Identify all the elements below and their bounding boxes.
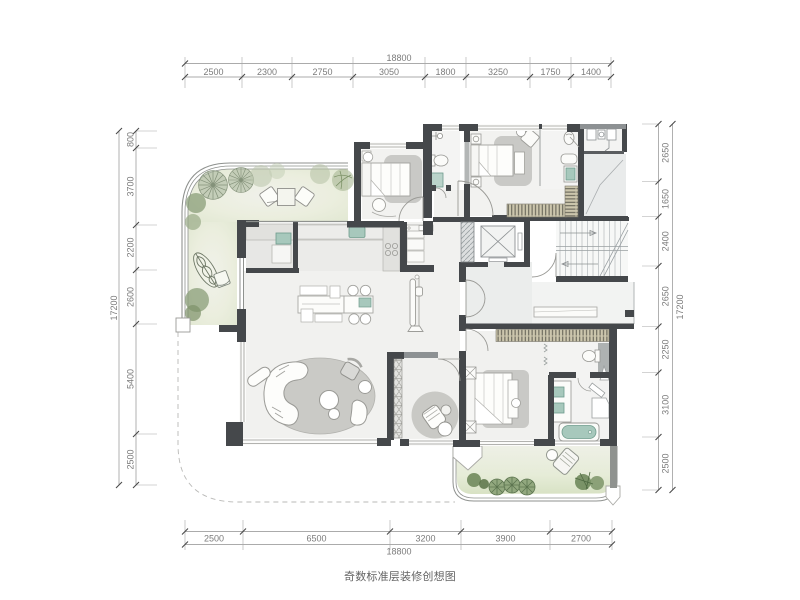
svg-text:2400: 2400 xyxy=(661,231,671,251)
svg-text:2200: 2200 xyxy=(126,237,136,257)
svg-text:奇数标准层装修创想图: 奇数标准层装修创想图 xyxy=(344,569,456,583)
svg-text:2250: 2250 xyxy=(661,339,671,359)
svg-text:3900: 3900 xyxy=(495,534,515,544)
svg-text:18800: 18800 xyxy=(386,53,411,63)
svg-text:1750: 1750 xyxy=(540,67,560,77)
svg-text:2500: 2500 xyxy=(203,67,223,77)
svg-text:5400: 5400 xyxy=(126,369,136,389)
svg-text:2600: 2600 xyxy=(126,287,136,307)
svg-text:1400: 1400 xyxy=(581,67,601,77)
svg-text:1650: 1650 xyxy=(661,189,671,209)
svg-text:2500: 2500 xyxy=(204,534,224,544)
svg-text:3200: 3200 xyxy=(415,534,435,544)
svg-text:1800: 1800 xyxy=(435,67,455,77)
svg-text:3100: 3100 xyxy=(661,395,671,415)
svg-text:2750: 2750 xyxy=(312,67,332,77)
svg-text:800: 800 xyxy=(126,132,136,147)
svg-text:2500: 2500 xyxy=(661,453,671,473)
svg-text:2700: 2700 xyxy=(571,534,591,544)
svg-text:3700: 3700 xyxy=(126,176,136,196)
svg-text:3050: 3050 xyxy=(379,67,399,77)
svg-text:18800: 18800 xyxy=(386,547,411,557)
svg-text:17200: 17200 xyxy=(675,294,685,319)
svg-text:6500: 6500 xyxy=(306,534,326,544)
svg-text:2650: 2650 xyxy=(661,286,671,306)
svg-text:2650: 2650 xyxy=(661,143,671,163)
svg-text:2300: 2300 xyxy=(257,67,277,77)
svg-text:3250: 3250 xyxy=(488,67,508,77)
svg-text:2500: 2500 xyxy=(126,449,136,469)
svg-text:17200: 17200 xyxy=(109,295,119,320)
